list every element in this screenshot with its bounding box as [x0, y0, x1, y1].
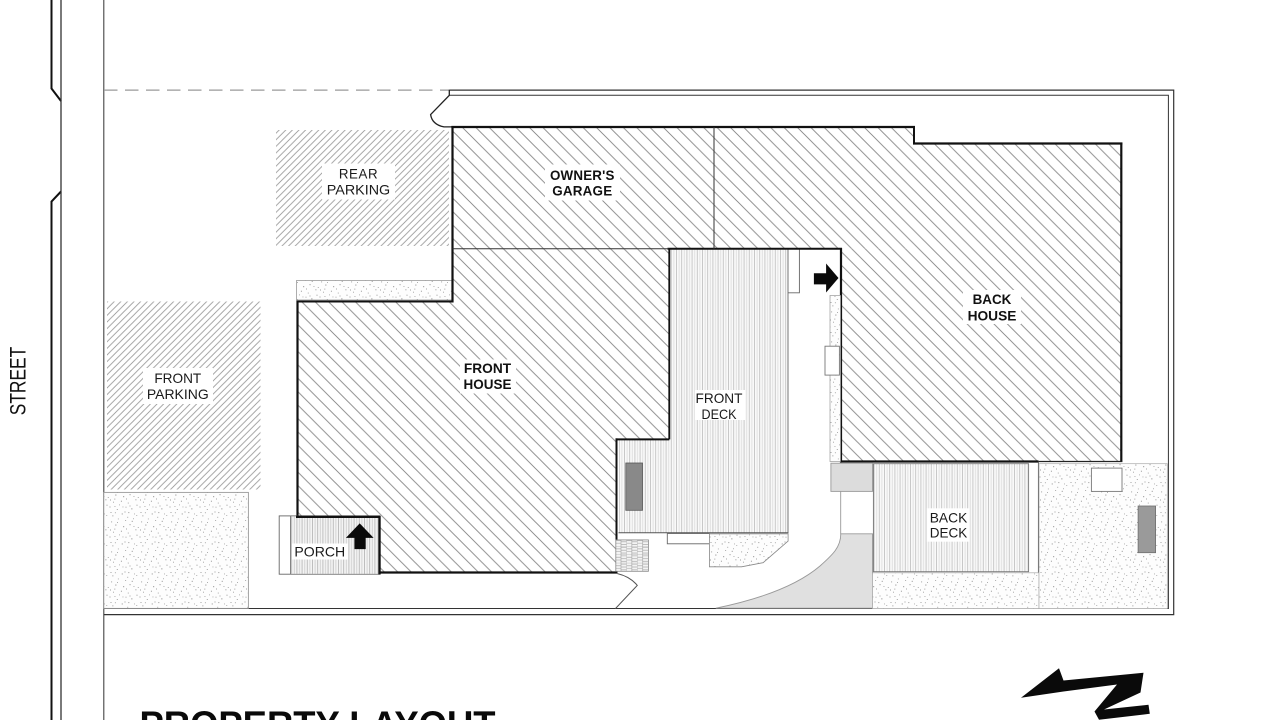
svg-text:FRONT: FRONT	[696, 390, 743, 406]
svg-text:FRONT: FRONT	[464, 360, 512, 376]
svg-text:PARKING: PARKING	[327, 182, 390, 198]
svg-text:STREET: STREET	[6, 347, 31, 416]
svg-text:OWNER'S: OWNER'S	[550, 167, 615, 183]
svg-text:DECK: DECK	[930, 524, 968, 540]
svg-text:FRONT: FRONT	[154, 370, 201, 386]
svg-text:BACK: BACK	[930, 509, 968, 525]
svg-text:HOUSE: HOUSE	[968, 307, 1017, 323]
svg-text:BACK: BACK	[973, 291, 1012, 307]
svg-text:PROPERTY LAYOUT: PROPERTY LAYOUT	[140, 704, 496, 720]
svg-text:DECK: DECK	[702, 406, 738, 422]
svg-text:PORCH: PORCH	[294, 543, 345, 559]
svg-text:GARAGE: GARAGE	[552, 183, 612, 199]
svg-text:PARKING: PARKING	[147, 386, 209, 402]
svg-text:REAR: REAR	[339, 166, 378, 182]
svg-text:HOUSE: HOUSE	[464, 376, 512, 392]
